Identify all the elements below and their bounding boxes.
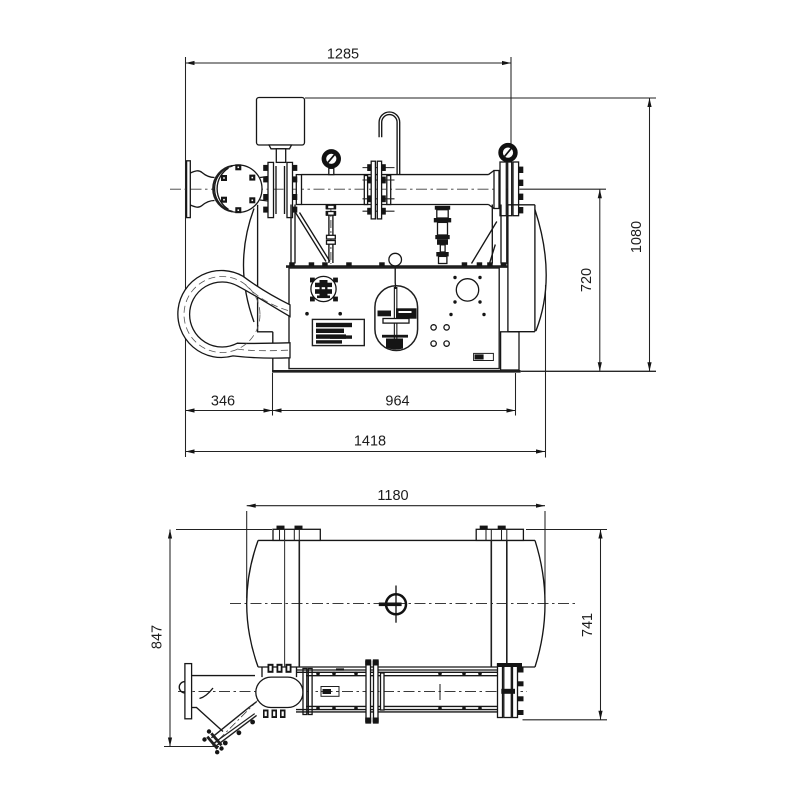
svg-text:1285: 1285 [327, 47, 359, 63]
svg-text:964: 964 [385, 394, 409, 410]
svg-text:847: 847 [150, 625, 166, 649]
svg-text:1080: 1080 [629, 221, 645, 253]
svg-text:1418: 1418 [354, 434, 386, 450]
svg-text:1180: 1180 [377, 488, 408, 504]
svg-text:346: 346 [211, 394, 235, 410]
svg-text:720: 720 [579, 268, 595, 292]
svg-text:741: 741 [580, 613, 596, 637]
